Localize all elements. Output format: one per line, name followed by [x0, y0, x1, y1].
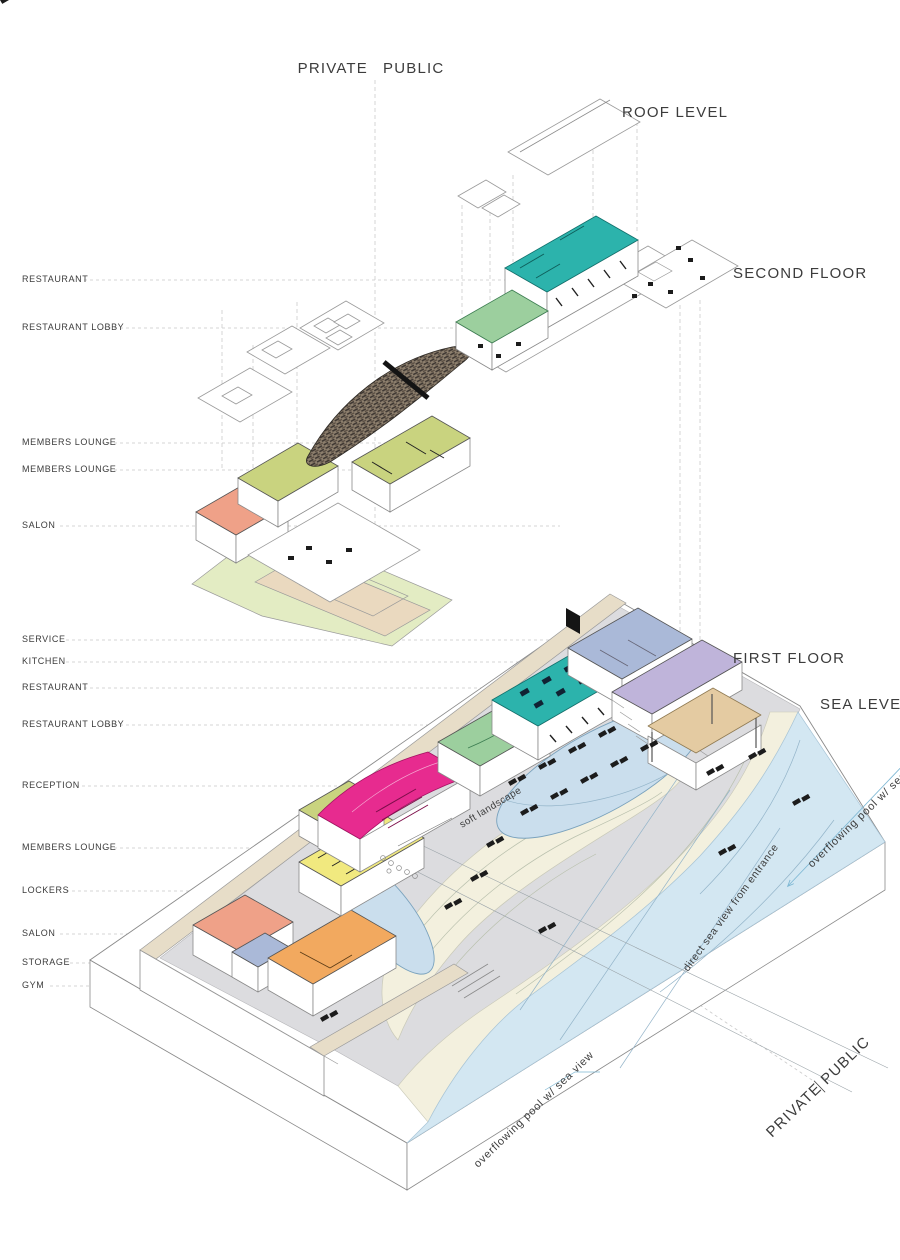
divider-top-private: PRIVATE: [298, 60, 368, 77]
level-label-sea: SEA LEVEL: [820, 696, 900, 713]
room-label: LOCKERS: [22, 885, 69, 895]
svg-text:PRIVATE: PRIVATE: [763, 1080, 825, 1141]
room-label: MEMBERS LOUNGE: [22, 437, 116, 447]
level-label-second: SECOND FLOOR: [733, 265, 867, 282]
divider-bottom-public: PUBLIC: [818, 1033, 874, 1088]
room-label: SALON: [22, 928, 56, 938]
room-label: RESTAURANT: [22, 682, 88, 692]
drawing-canvas: soft landscape direct sea view from entr…: [0, 0, 900, 1260]
divider-top-public: PUBLIC: [383, 60, 444, 77]
room-label: RESTAURANT LOBBY: [22, 322, 124, 332]
upper-stack: [192, 301, 471, 646]
room-label: KITCHEN: [22, 656, 66, 666]
room-label: SALON: [22, 520, 56, 530]
roof-slab: [508, 99, 640, 175]
room-label: MEMBERS LOUNGE: [22, 464, 116, 474]
axonometric-diagram: soft landscape direct sea view from entr…: [0, 0, 900, 1260]
room-label: STORAGE: [22, 957, 70, 967]
level-label-roof: ROOF LEVEL: [622, 104, 728, 121]
room-label: SERVICE: [22, 634, 66, 644]
svg-text:PUBLIC: PUBLIC: [818, 1033, 874, 1088]
room-label: RESTAURANT: [22, 274, 88, 284]
divider-bottom-private: PRIVATE: [763, 1080, 825, 1141]
room-label: MEMBERS LOUNGE: [22, 842, 116, 852]
room-label: RESTAURANT LOBBY: [22, 719, 124, 729]
room-label: GYM: [22, 980, 44, 990]
second-floor: [456, 216, 738, 372]
room-label: RECEPTION: [22, 780, 80, 790]
divider-bottom: PRIVATE PUBLIC: [763, 1033, 874, 1141]
level-label-first: FIRST FLOOR: [733, 650, 845, 667]
roof-level: [458, 99, 640, 217]
